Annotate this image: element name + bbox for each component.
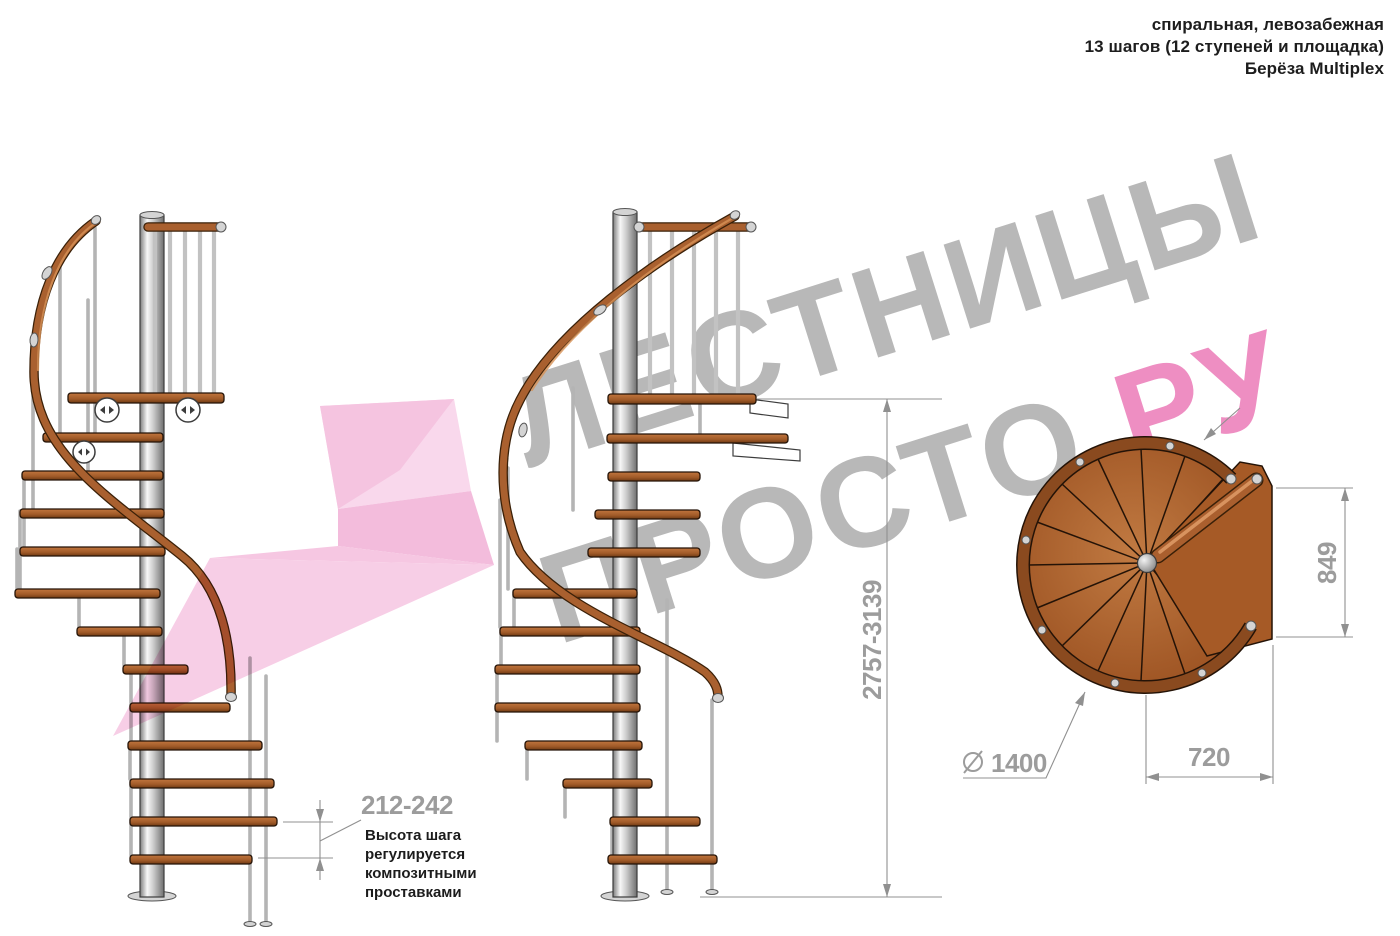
diameter-icon bbox=[964, 751, 982, 773]
plan-view bbox=[1022, 442, 1272, 687]
drawing-sheet: спиральная, левозабежная 13 шагов (12 ст… bbox=[0, 0, 1400, 936]
platform-width-label: 720 bbox=[1188, 742, 1230, 772]
plan-center-hub bbox=[1138, 554, 1157, 573]
platform-depth-dimension: 849 bbox=[1276, 488, 1353, 637]
platform-depth-label: 849 bbox=[1312, 542, 1342, 584]
left-joint-discs bbox=[73, 398, 200, 463]
watermark-arrow-icon bbox=[113, 399, 494, 736]
step-height-note: Высота шага регулируется композитными пр… bbox=[365, 826, 495, 902]
height-dimension-label: 2757-3139 bbox=[857, 580, 887, 700]
step-height-label: 212-242 bbox=[361, 790, 453, 820]
diameter-label: 1400 bbox=[991, 748, 1047, 778]
technical-drawing: ЛЕСТНИЦЫ ПРОСТО.РУ bbox=[0, 0, 1400, 936]
